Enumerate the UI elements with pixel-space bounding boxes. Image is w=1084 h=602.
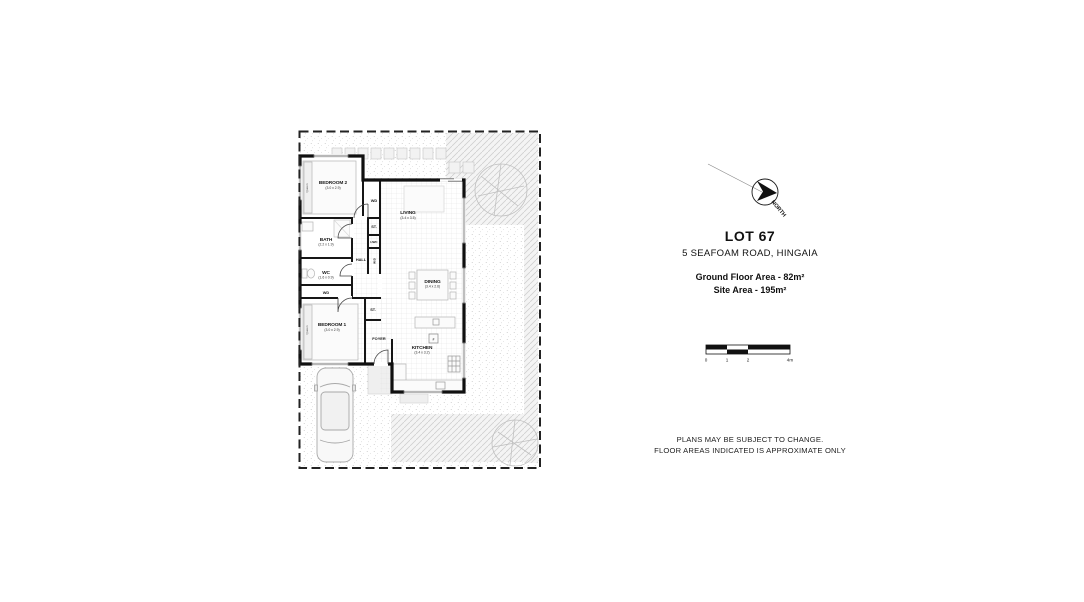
room-label-hall: HALL bbox=[356, 257, 367, 262]
room-dims-bedroom1: (3.0 x 2.9) bbox=[324, 328, 339, 332]
car-outline bbox=[315, 368, 356, 462]
north-label: NORTH bbox=[769, 199, 786, 218]
room-dims-dining: (3.4 x 2.6) bbox=[425, 285, 440, 289]
room-label-foyer: FOYER bbox=[372, 336, 386, 341]
ground-floor-area: Ground Floor Area - 82m² bbox=[630, 271, 870, 284]
scale-tick-4m: 4m bbox=[787, 358, 794, 363]
site-plan: BEDROOM 2 (3.0 x 2.9) Queen WD LIVING (3… bbox=[296, 128, 544, 472]
label-store-top: ST. bbox=[371, 224, 377, 229]
disclaimer-line-2: FLOOR AREAS INDICATED IS APPROXIMATE ONL… bbox=[610, 445, 890, 456]
room-dims-kitchen: (3.4 x 3.2) bbox=[414, 351, 429, 355]
bed1-size-tag: Queen bbox=[305, 325, 309, 334]
room-dims-bath: (2.2 x 1.9) bbox=[318, 243, 333, 247]
room-dims-wc: (1.6 x 0.9) bbox=[318, 276, 333, 280]
label-hwc: HWC bbox=[370, 240, 378, 244]
label-fridge: F bbox=[433, 338, 435, 342]
label-wardrobe-mid: WD bbox=[323, 290, 330, 295]
north-arrow-icon: NORTH bbox=[700, 150, 810, 220]
scale-tick-0: 0 bbox=[705, 358, 708, 363]
lot-title: LOT 67 bbox=[630, 228, 870, 244]
scale-bar: 0 1 2 4m bbox=[705, 344, 797, 366]
room-dims-bedroom2: (3.0 x 2.9) bbox=[325, 186, 340, 190]
plan-sheet: BEDROOM 2 (3.0 x 2.9) Queen WD LIVING (3… bbox=[0, 0, 1084, 602]
label-laundry: W/D bbox=[373, 257, 377, 264]
label-store-foyer: ST. bbox=[370, 307, 376, 312]
scale-tick-1: 1 bbox=[726, 358, 729, 363]
label-wardrobe-top: WD bbox=[371, 198, 378, 203]
scale-tick-2: 2 bbox=[747, 358, 750, 363]
site-address: 5 SEAFOAM ROAD, HINGAIA bbox=[630, 248, 870, 259]
disclaimer: PLANS MAY BE SUBJECT TO CHANGE. FLOOR AR… bbox=[610, 434, 890, 456]
bed2-size-tag: Queen bbox=[305, 183, 309, 192]
disclaimer-line-1: PLANS MAY BE SUBJECT TO CHANGE. bbox=[610, 434, 890, 445]
room-dims-living: (3.4 x 3.5) bbox=[400, 216, 415, 220]
area-summary: Ground Floor Area - 82m² Site Area - 195… bbox=[630, 271, 870, 297]
site-area: Site Area - 195m² bbox=[630, 284, 870, 297]
